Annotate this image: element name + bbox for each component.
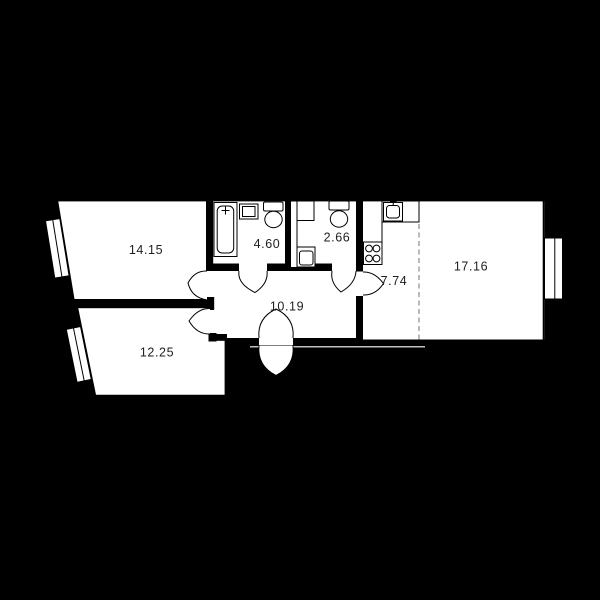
room-label-17-16: 17.16 [454,260,488,274]
stove [364,242,383,265]
room-label-14-15: 14.15 [129,243,163,257]
wall-hallway-bottom-right [293,338,363,346]
room-label-7-74: 7.74 [381,274,408,288]
wall-toilet-kitchen [356,199,363,272]
bathroom-toilet [264,202,284,228]
room-label-10-19: 10.19 [270,300,304,314]
wall-bathroom-bottom-left [206,264,239,272]
floor-plan-canvas: 14.15 4.60 2.66 7.74 17.16 10.19 12.25 [0,0,600,600]
window-right [545,238,563,299]
room-label-2-66: 2.66 [324,231,351,245]
bathtub [214,203,237,257]
wall-hallway-bottom-left [227,338,259,346]
wall-bedroom-bathroom [206,199,213,271]
ventilation-shaft [291,201,298,268]
bathroom-sink [240,204,259,219]
wall-hallway-kitchen-lower [356,296,363,341]
toilet-wc [329,201,349,227]
floor-plan: 14.15 4.60 2.66 7.74 17.16 10.19 12.25 [0,0,600,600]
utility-box [297,201,314,221]
room-label-12-25: 12.25 [140,346,174,360]
wall-between-bedrooms [73,299,213,308]
washing-machine [297,247,315,267]
room-label-4-60: 4.60 [254,237,281,251]
